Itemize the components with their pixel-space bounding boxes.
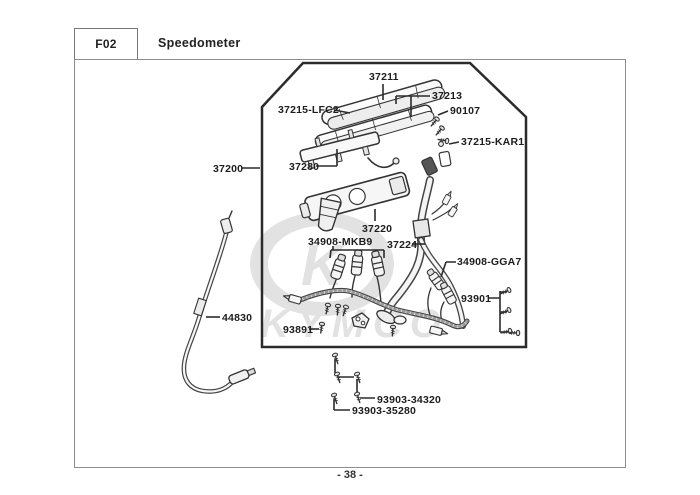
label-37213: 37213 <box>432 90 462 102</box>
label-44830: 44830 <box>222 312 252 324</box>
part-clip-37215-kar1 <box>438 137 449 147</box>
label-90107: 90107 <box>450 105 480 117</box>
catalog-page: F02 Speedometer K <box>0 0 700 495</box>
label-34908-gga7: 34908-GGA7 <box>457 256 521 268</box>
label-37215-lfc2: 37215-LFC2 <box>278 104 339 116</box>
page-number: - 38 - <box>0 469 700 481</box>
leader-90107 <box>438 111 448 115</box>
label-37280: 37280 <box>289 161 319 173</box>
leader-37215-kar1 <box>449 142 459 144</box>
label-37215-kar1: 37215-KAR1 <box>461 136 524 148</box>
label-93891: 93891 <box>283 324 313 336</box>
label-37200: 37200 <box>213 163 243 175</box>
label-93903-35280: 93903-35280 <box>352 405 416 417</box>
part-speedo-cable-44830 <box>184 211 256 392</box>
label-37224: 37224 <box>387 239 417 251</box>
label-37211: 37211 <box>369 71 399 83</box>
label-37220: 37220 <box>362 223 392 235</box>
label-34908-mkb9: 34908-MKB9 <box>308 236 372 248</box>
leader-93903-34320 <box>335 359 375 398</box>
label-93901: 93901 <box>461 293 491 305</box>
